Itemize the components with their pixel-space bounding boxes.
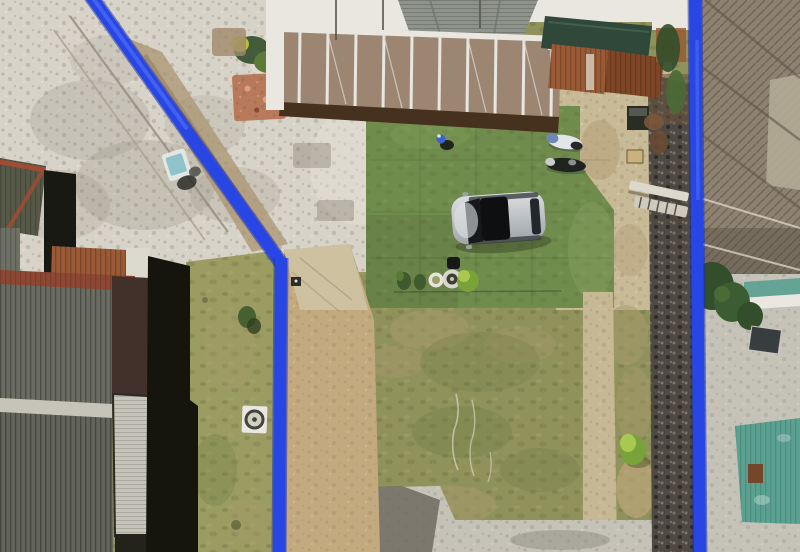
vine xyxy=(666,70,686,114)
aerial-photo-canvas xyxy=(0,0,800,552)
car-roof xyxy=(480,196,511,241)
solar-panel xyxy=(748,326,781,354)
dark-object xyxy=(447,257,460,269)
lawn-tan-strip xyxy=(583,292,617,552)
grass-strip xyxy=(184,250,281,552)
crate xyxy=(627,150,643,163)
plaza-patch xyxy=(293,143,331,168)
car xyxy=(450,186,552,256)
well-cover xyxy=(242,406,268,434)
aerial-photo xyxy=(0,0,800,552)
plaza-patch xyxy=(317,200,354,221)
boundary-left xyxy=(279,258,281,552)
vine xyxy=(656,24,680,72)
teal-roof xyxy=(735,418,800,524)
chimney xyxy=(748,464,763,483)
plaza-brown-patch xyxy=(212,28,246,56)
